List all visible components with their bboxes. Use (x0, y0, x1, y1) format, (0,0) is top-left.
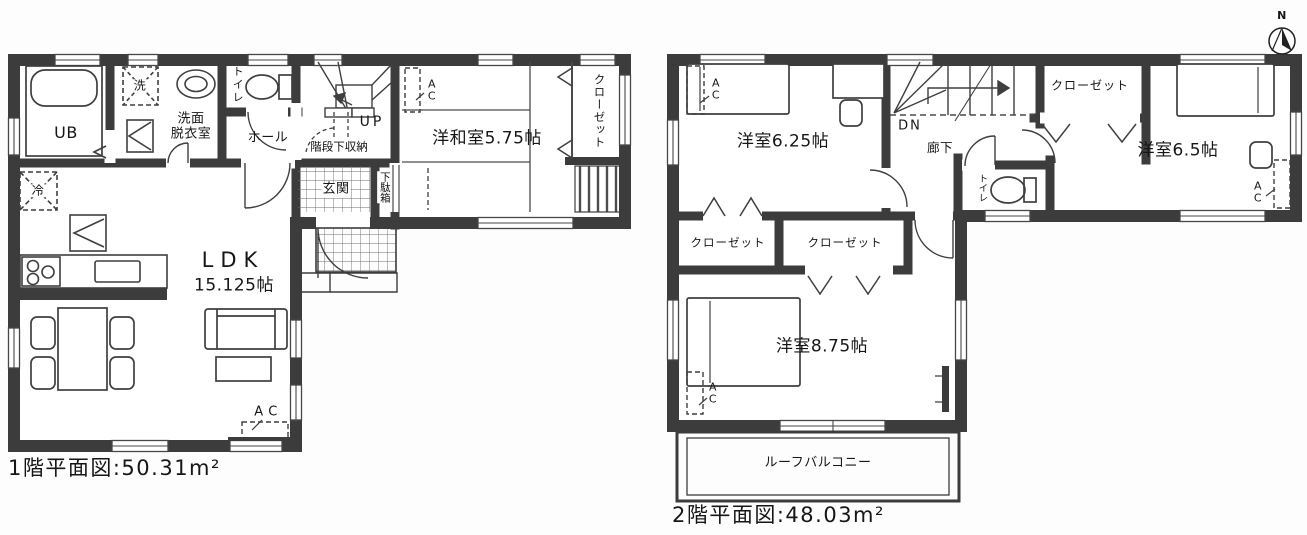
compass-icon (1269, 28, 1295, 54)
room-label-toilet-1f: トイレ (231, 66, 243, 105)
coffee-table (216, 357, 271, 381)
chair (110, 317, 134, 349)
ac-label-tatami: A C (428, 78, 436, 101)
bed (1177, 64, 1274, 116)
chair (110, 357, 134, 389)
room-label-closet-b: クローゼット (808, 237, 883, 250)
room-label-bedroom-65: 洋室6.5帖 (1137, 141, 1218, 160)
stairs-dn-label: DN (898, 120, 922, 135)
room-label-toilet-2f: トイレ (976, 174, 987, 203)
chair (31, 317, 55, 349)
room-label-hall: ホール (248, 132, 289, 147)
desk-chair (1250, 142, 1272, 168)
chair (31, 357, 55, 389)
room-label-roof-balcony: ルーフバルコニー (765, 457, 872, 472)
room-label-bedroom-625: 洋室6.25帖 (737, 132, 829, 151)
side-steps (575, 166, 623, 212)
desk (833, 64, 884, 98)
dining-table (58, 308, 107, 390)
ac-label-65: A C (1254, 180, 1262, 203)
room-label-under-stair-storage: 階段下収納 (310, 141, 368, 154)
floor1-plan (9, 55, 631, 452)
room-label-closet-top: クローゼット (1051, 79, 1129, 92)
room-label-ldk: LDK (202, 249, 265, 273)
room-label-bedroom-875: 洋室8.75帖 (776, 337, 868, 356)
room-label-shoe-cabinet: 下駄箱 (377, 171, 391, 203)
fridge-symbol: 冷 (31, 184, 46, 197)
compass-north-label: N (1277, 10, 1287, 22)
kitchen-counter-front (20, 288, 167, 300)
floor2-plan (668, 55, 1302, 502)
room-label-closet-a: クローゼット (691, 237, 766, 250)
room-label-ldk-size: 15.125帖 (194, 276, 274, 295)
ac-label-875: A C (709, 381, 717, 404)
washer-symbol: 洗 (133, 79, 148, 92)
ac-label-ldk: A C (254, 406, 278, 421)
kitchen (20, 255, 167, 288)
floor1-caption: 1階平面図:50.31m² (8, 457, 221, 481)
stairs-up-label: UP (360, 115, 385, 131)
ac-label-625: A C (712, 77, 720, 100)
entrance-porch (316, 228, 396, 272)
porch-step (299, 273, 397, 292)
room-label-ub: UB (54, 124, 78, 142)
room-label-washroom: 洗面 脱衣室 (171, 112, 212, 141)
floor2-caption: 2階平面図:48.03m² (672, 504, 885, 528)
room-label-closet-1f: クローゼット (593, 74, 606, 149)
floorplan-image: UB 洗 洗面 脱衣室 トイレ ホール UP 階段下収納 玄関 下駄箱 洋和室5… (0, 0, 1307, 535)
desk-chair (840, 100, 862, 126)
room-label-tatami: 洋和室5.75帖 (432, 129, 542, 148)
room-label-genkan: 玄関 (321, 183, 350, 198)
bed (687, 64, 789, 114)
dining-set (31, 308, 134, 390)
room-label-corridor: 廊下 (927, 141, 953, 155)
